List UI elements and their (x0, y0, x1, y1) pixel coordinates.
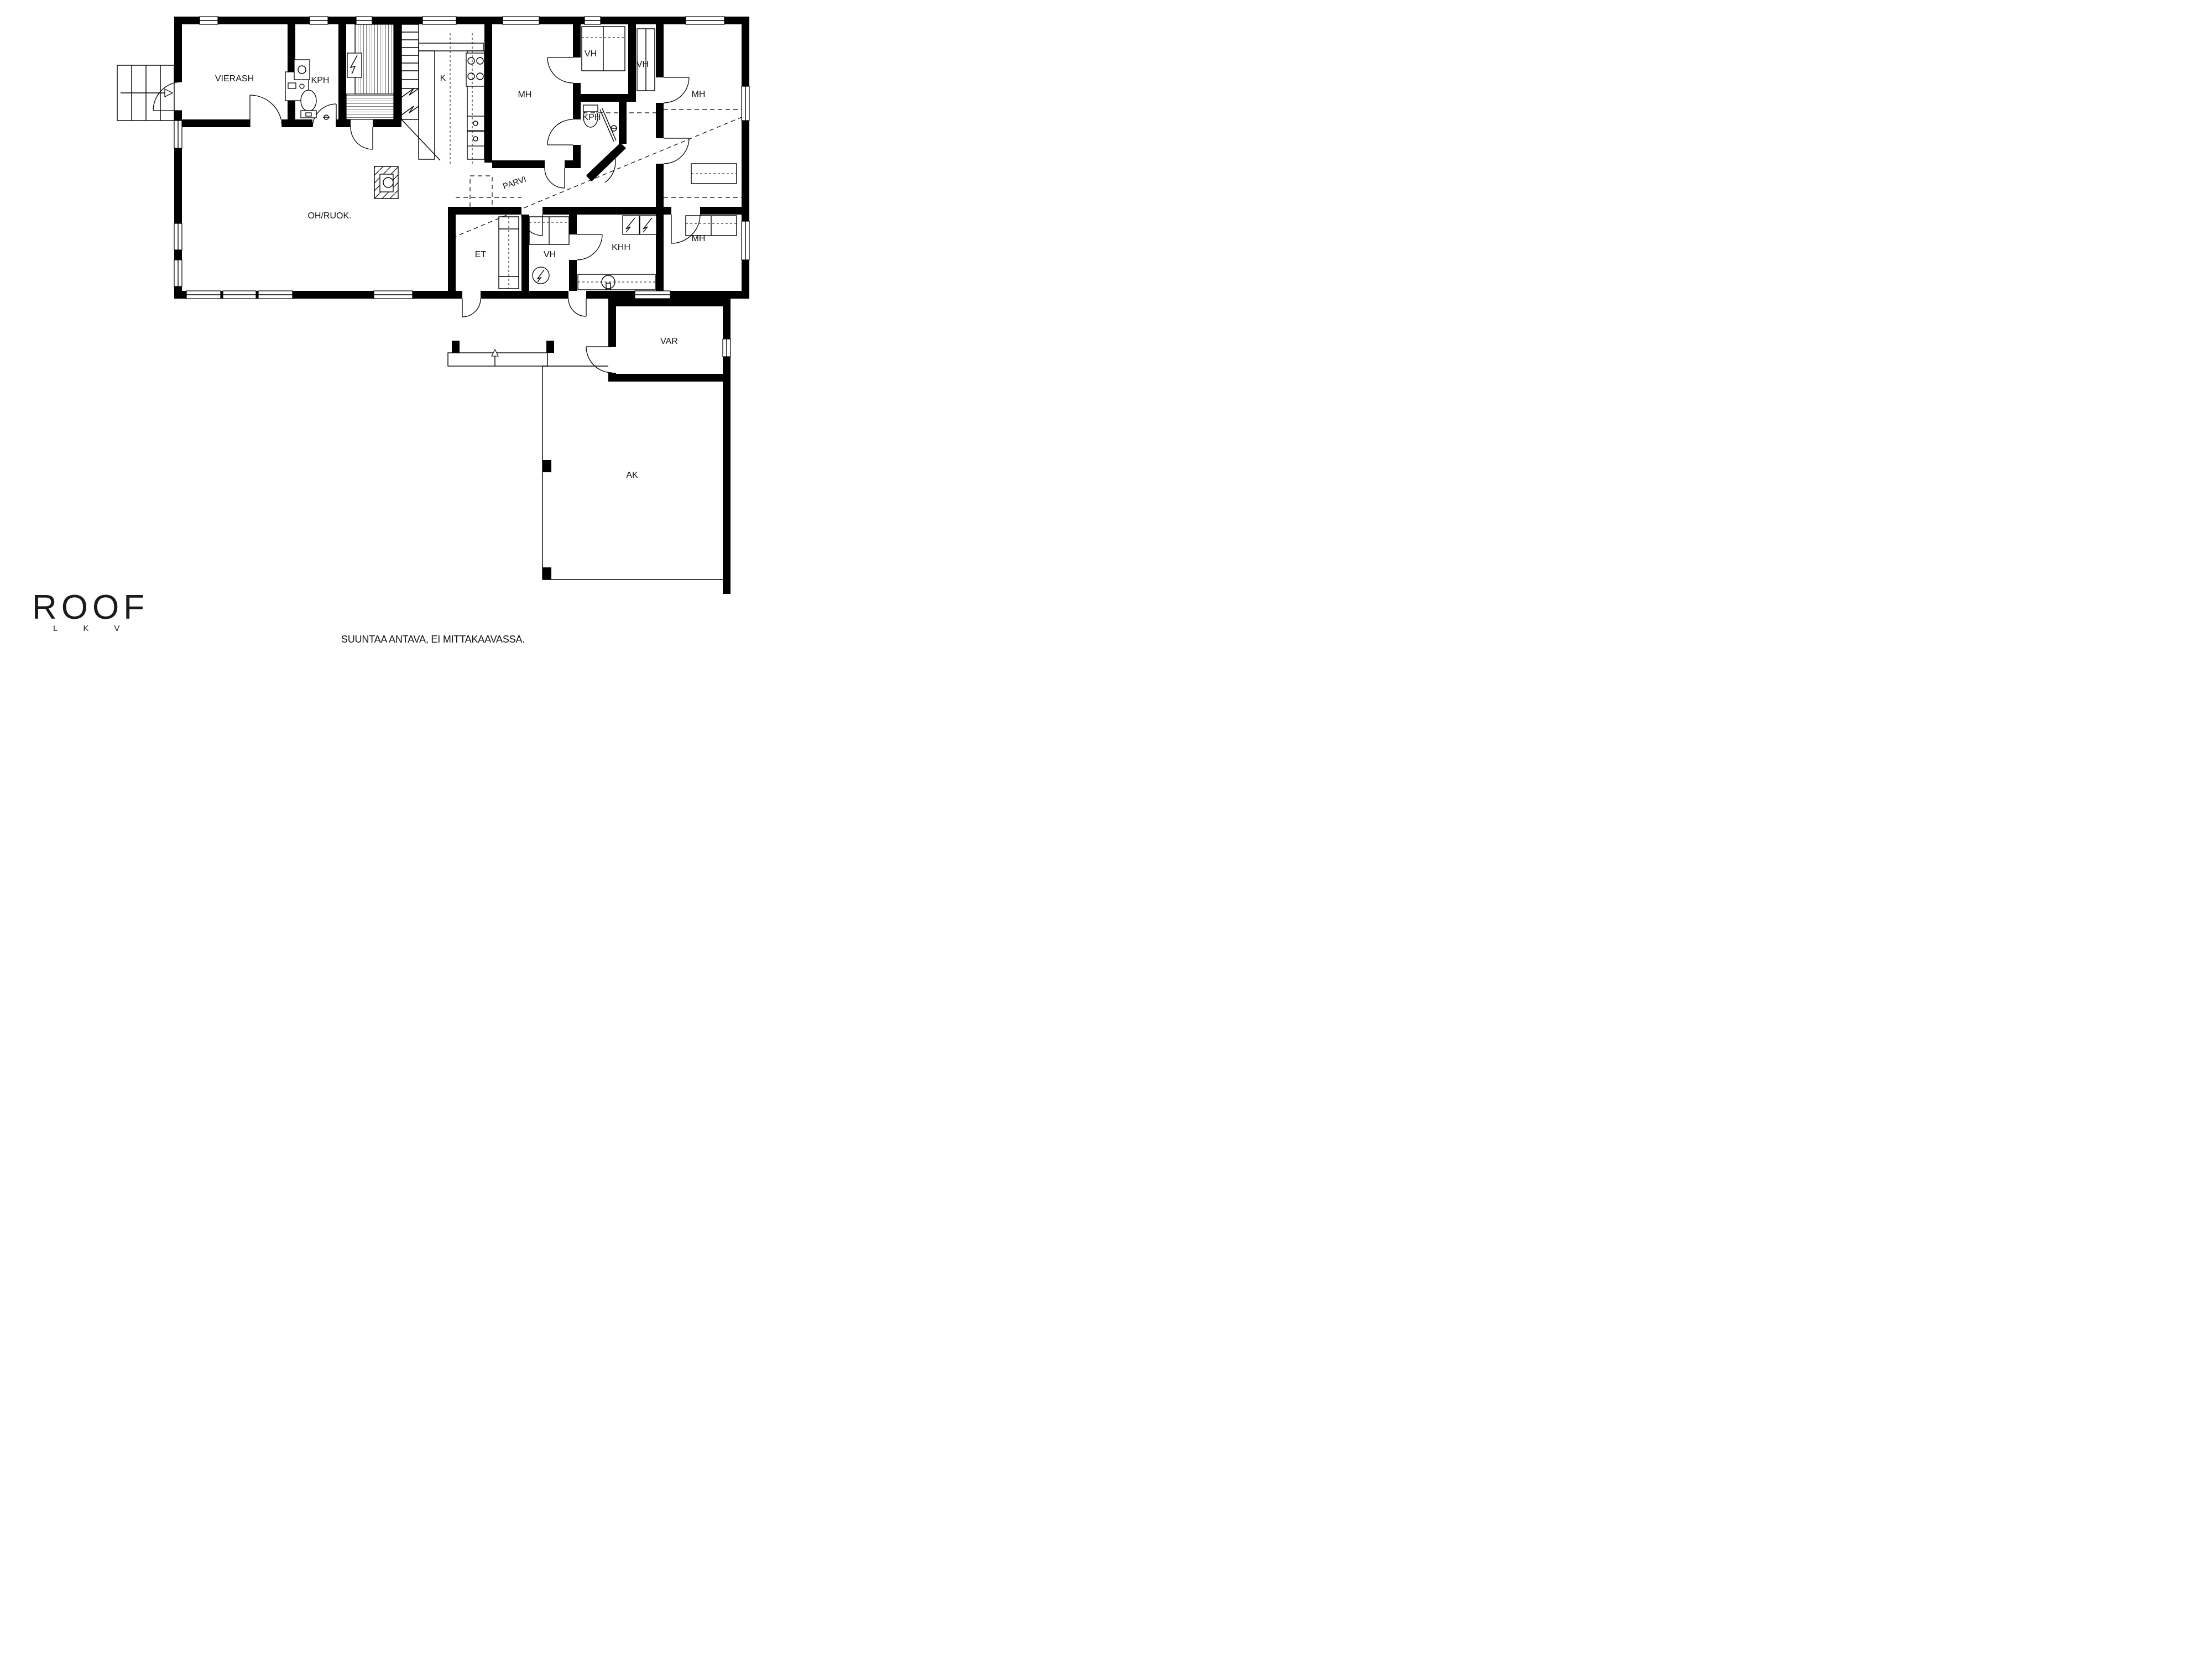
window (422, 17, 456, 24)
room-label-oh-ruok: OH/RUOK. (307, 211, 351, 221)
shower-screen (600, 108, 616, 142)
washing-machine-icon (533, 267, 549, 284)
floor-plan-drawing: VIERASH KPH K MH VH VH MH KPH PARVI OH/R… (0, 0, 867, 650)
window (585, 17, 601, 24)
kitchen-fixtures (419, 33, 484, 166)
fireplace-icon (374, 166, 398, 199)
disclaimer-text: SUUNTAA ANTAVA, EI MITTAKAAVASSA. (341, 634, 525, 645)
sauna-stove-icon (347, 53, 362, 77)
porch (448, 341, 554, 366)
floor-plan-page: VIERASH KPH K MH VH VH MH KPH PARVI OH/R… (0, 0, 867, 650)
mh-top-right-door (664, 138, 689, 164)
closet (691, 164, 737, 184)
room-label-var: VAR (660, 337, 678, 346)
window (635, 291, 670, 299)
toilet-icon (301, 90, 316, 118)
room-label-mh-right: MH (692, 234, 706, 243)
logo-lkv: LKV (53, 624, 145, 633)
entry-door (153, 82, 182, 111)
window (686, 17, 724, 24)
khh-door (577, 234, 602, 260)
window (356, 17, 372, 24)
room-label-ak: AK (626, 471, 638, 480)
window (742, 221, 749, 260)
closet (499, 217, 519, 289)
entry-stairs (117, 65, 174, 121)
room-label-parvi: PARVI (502, 175, 528, 191)
et-exterior-door (462, 291, 481, 317)
branding: ROOF LKV (32, 588, 149, 633)
doors (153, 58, 700, 373)
room-label-kph-mid: KPH (583, 113, 601, 122)
window (186, 291, 221, 299)
vierash-door (250, 95, 282, 127)
window (374, 291, 413, 299)
window (723, 339, 731, 357)
faucet-icon (323, 115, 330, 119)
sink-icon (294, 60, 310, 80)
room-label-mh-top-right: MH (692, 90, 706, 99)
room-label-mh-mid: MH (518, 90, 532, 100)
window (174, 223, 182, 250)
appliance-icon (640, 216, 656, 234)
vh-right-door (664, 77, 689, 103)
window (742, 86, 749, 121)
vh-top-door (547, 58, 573, 83)
sink-icon (611, 126, 617, 131)
sauna-door (351, 127, 373, 149)
window (200, 17, 218, 24)
var-door (586, 347, 612, 373)
room-label-et: ET (475, 250, 487, 259)
room-label-kitchen: K (440, 74, 446, 83)
room-label-vh-top: VH (585, 49, 597, 59)
interior-walls (182, 24, 742, 594)
window (503, 17, 539, 24)
appliance-icon (623, 216, 639, 234)
closet (529, 217, 569, 244)
window (174, 260, 182, 286)
stove-icon (466, 53, 484, 86)
window (223, 291, 256, 299)
room-label-vierash: VIERASH (215, 74, 254, 84)
window (174, 121, 182, 148)
room-label-vh-bottom: VH (544, 250, 556, 259)
kph-mid-mh-door (547, 119, 573, 145)
carport-boundary (542, 366, 731, 594)
closet (582, 27, 625, 71)
khh-exterior-door (568, 291, 586, 316)
window (310, 17, 328, 24)
bathroom-fixtures-mid (583, 105, 617, 142)
room-label-khh: KHH (612, 243, 630, 252)
room-label-kph-guest: KPH (311, 76, 330, 85)
mh-mid-door (545, 168, 565, 188)
logo-roof: ROOF (32, 588, 149, 627)
window (258, 291, 293, 299)
utility-sink-icon (578, 274, 655, 290)
sauna-benches (346, 24, 394, 119)
kitchen-sink-icon (467, 116, 484, 146)
room-label-vh-right: VH (637, 60, 649, 69)
direction-arrow-icon (165, 89, 173, 97)
